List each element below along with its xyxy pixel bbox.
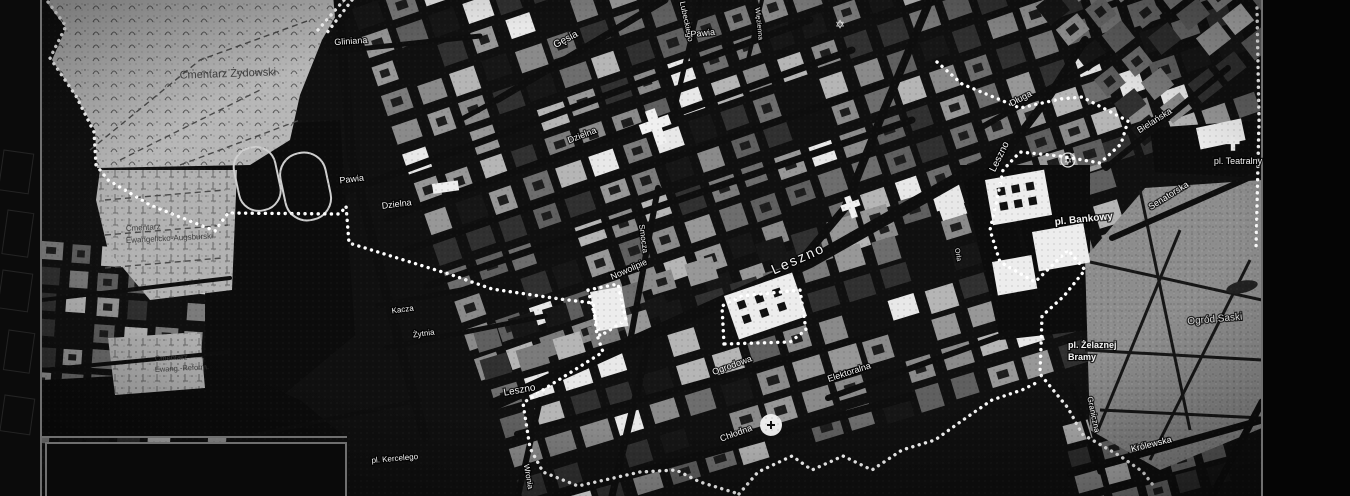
right-margin xyxy=(1322,0,1350,496)
place-label: Bramy xyxy=(1068,352,1096,362)
street-label: pl. Teatralny xyxy=(1214,156,1263,166)
warsaw-ghetto-map: ✡✡ GlinianaGęsiaLubeckiegoPawiaWięzienna… xyxy=(0,0,1350,496)
map-viewport: ✡✡ GlinianaGęsiaLubeckiegoPawiaWięzienna… xyxy=(0,0,1350,496)
place-label: pl. Żelaznej xyxy=(1068,340,1117,350)
left-margin xyxy=(0,0,41,496)
inset-panel xyxy=(46,443,346,496)
place-label: Cmentarz xyxy=(155,352,188,363)
place-label: Cmentarz xyxy=(126,222,161,233)
